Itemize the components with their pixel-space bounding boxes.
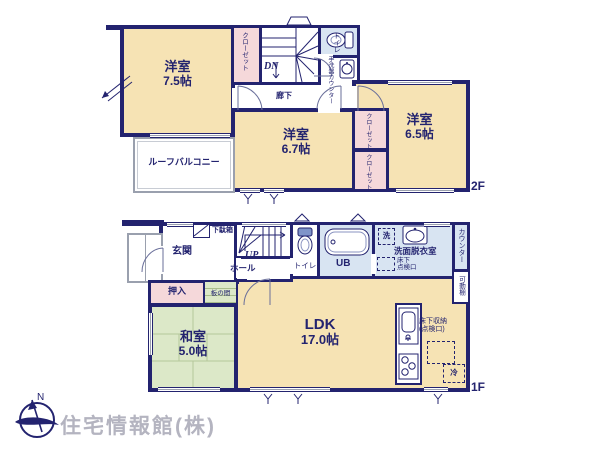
storage-label: 床下収納 (点検口)	[419, 318, 447, 334]
closet-67b-label: クローゼット	[364, 154, 371, 189]
diagonal-mark	[100, 74, 134, 102]
washitsu-name: 和室	[180, 330, 206, 345]
handwash-basin-icon	[339, 59, 355, 79]
window	[167, 222, 193, 227]
room65-size: 6.5帖	[405, 128, 434, 142]
washroom-label: 洗面脱衣室	[394, 247, 437, 257]
stairs-1f	[234, 222, 293, 259]
toilet-icon-1f	[296, 227, 314, 255]
kitchen-icons	[398, 307, 419, 381]
room75-label: 洋室 7.5帖	[135, 60, 220, 89]
shoebox-label: 下駄箱	[212, 227, 233, 235]
storage-line1: 床下収納	[419, 318, 447, 326]
ldk-label: LDK 17.0帖	[270, 316, 370, 348]
y-mark	[432, 393, 444, 405]
room67-label: 洋室 6.7帖	[246, 128, 346, 157]
shoebox	[193, 224, 210, 238]
washitsu-label: 和室 5.0帖	[152, 330, 234, 359]
y-mark	[292, 393, 304, 405]
hallway-label: 廊下	[276, 91, 292, 100]
room65-label: 洋室 6.5帖	[372, 113, 467, 142]
room75-name: 洋室	[164, 60, 190, 75]
fridge-box: 冷	[443, 364, 465, 383]
ldk-name: LDK	[305, 316, 336, 333]
compass-icon: N	[12, 392, 62, 444]
washer-label: 洗	[383, 232, 391, 241]
window	[424, 387, 448, 392]
wall-stub	[122, 220, 164, 226]
ub-label: UB	[336, 258, 350, 270]
window	[250, 387, 330, 392]
hatch-label: 床下 点検口	[397, 257, 417, 272]
room65-name: 洋室	[406, 113, 432, 128]
window	[396, 188, 454, 193]
window	[242, 222, 286, 227]
vent-mark	[350, 213, 366, 222]
company-name: 住宅情報館(株)	[60, 410, 216, 440]
shelf-label: 可動棚	[457, 276, 464, 300]
basin-counter-label: 手洗器カウンター	[326, 56, 333, 110]
window	[150, 133, 230, 138]
toilet-1f-label: トイレ	[290, 262, 320, 271]
room67-name: 洋室	[283, 128, 309, 143]
door-gap	[371, 254, 376, 274]
genkan-label: 玄関	[172, 246, 192, 258]
window	[388, 80, 452, 85]
fridge-label: 冷	[450, 369, 458, 378]
room75-size: 7.5帖	[163, 75, 192, 89]
ldk-door-arc	[243, 278, 271, 306]
toilet-2f-label: トイレ	[332, 32, 340, 54]
room67-size: 6.7帖	[282, 143, 311, 157]
washer-box: 洗	[378, 228, 395, 245]
hall-label: ホール	[230, 264, 256, 274]
washitsu-size: 5.0帖	[179, 345, 208, 359]
oshiire-label: 押入	[152, 286, 202, 296]
closet-67a-label: クローゼット	[364, 113, 371, 148]
y-mark	[262, 393, 274, 405]
bathtub-icon	[324, 228, 370, 256]
closet-2f-label: クローゼット	[240, 32, 247, 80]
door-arc-room75	[237, 85, 263, 111]
stairs-2f	[259, 25, 321, 85]
stairs-2f-treads	[262, 28, 318, 82]
y-mark	[268, 193, 280, 205]
wash-basin-icon	[402, 225, 428, 245]
floor-1f-label: 1F	[471, 381, 485, 395]
underfloor-storage-box	[427, 341, 455, 364]
ldk-size: 17.0帖	[301, 333, 339, 348]
counter-label: カウンター	[457, 228, 465, 268]
y-mark	[242, 193, 254, 205]
up-label: UP	[245, 250, 258, 262]
kitchen-unit	[395, 303, 422, 385]
itanoma-label: 板の間	[205, 290, 236, 297]
hatch-line2: 点検口	[397, 264, 417, 271]
floor-hatch-box	[377, 257, 395, 271]
compass-n: N	[37, 392, 44, 403]
floorplan: ルーフバルコニー 洋室 7.5帖 洋室 6.7帖	[0, 0, 600, 450]
door-arc-room65	[357, 85, 385, 112]
vent-mark	[294, 213, 310, 222]
balcony-label: ルーフバルコニー	[138, 157, 230, 167]
entrance-door-arc	[141, 247, 164, 273]
storage-line2: (点検口)	[419, 326, 447, 334]
floor-2f-label: 2F	[471, 180, 485, 194]
vent-mark	[286, 16, 312, 26]
window	[158, 387, 220, 392]
dn-label: DN	[264, 61, 278, 73]
window	[424, 222, 450, 227]
